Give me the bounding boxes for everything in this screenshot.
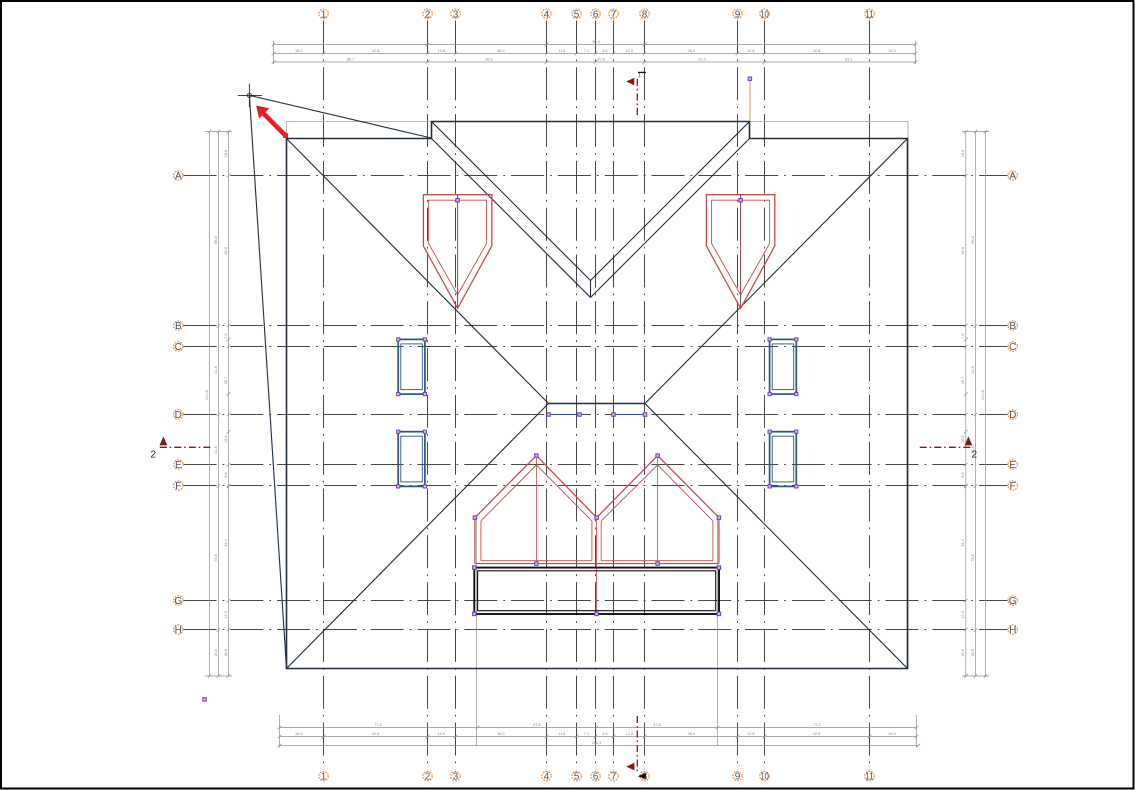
svg-text:3: 3 xyxy=(453,9,459,20)
svg-text:F: F xyxy=(175,481,181,492)
svg-text:8: 8 xyxy=(642,9,648,20)
svg-text:D: D xyxy=(1009,410,1016,421)
svg-text:7.6: 7.6 xyxy=(961,334,965,339)
svg-text:82.8: 82.8 xyxy=(224,247,228,254)
svg-text:G: G xyxy=(174,596,182,607)
svg-text:7: 7 xyxy=(611,9,617,20)
svg-text:47.5: 47.5 xyxy=(653,723,660,727)
svg-text:12.8: 12.8 xyxy=(747,732,754,736)
svg-text:12.3: 12.3 xyxy=(224,611,228,618)
svg-text:3: 3 xyxy=(453,772,459,783)
svg-text:11.8: 11.8 xyxy=(558,49,565,53)
svg-text:A: A xyxy=(175,171,182,182)
svg-text:42.8: 42.8 xyxy=(813,49,820,53)
svg-text:2: 2 xyxy=(972,450,978,461)
svg-text:76.8: 76.8 xyxy=(971,554,975,561)
svg-text:D: D xyxy=(175,410,182,421)
svg-text:28.7: 28.7 xyxy=(224,377,228,384)
svg-text:E: E xyxy=(1009,460,1016,471)
svg-text:10.8: 10.8 xyxy=(438,732,445,736)
svg-text:12.8: 12.8 xyxy=(747,49,754,53)
svg-text:18.8: 18.8 xyxy=(214,649,218,656)
svg-text:18.8: 18.8 xyxy=(961,649,965,656)
svg-text:18.8: 18.8 xyxy=(224,649,228,656)
svg-text:214.8: 214.8 xyxy=(981,390,985,400)
svg-text:76.8: 76.8 xyxy=(214,554,218,561)
svg-text:47.5: 47.5 xyxy=(533,723,540,727)
svg-text:36.0: 36.0 xyxy=(688,49,695,53)
svg-text:11: 11 xyxy=(865,9,874,20)
svg-text:10.8: 10.8 xyxy=(597,57,604,61)
svg-text:H: H xyxy=(175,625,182,636)
svg-text:6: 6 xyxy=(593,9,599,20)
svg-text:11.8: 11.8 xyxy=(558,732,565,736)
svg-text:10: 10 xyxy=(760,772,769,783)
svg-text:18.0: 18.0 xyxy=(295,49,302,53)
svg-text:4: 4 xyxy=(544,772,550,783)
svg-text:44.4: 44.4 xyxy=(961,539,965,546)
svg-text:77.0: 77.0 xyxy=(813,723,820,727)
svg-text:86.7: 86.7 xyxy=(347,57,354,61)
svg-text:21.8: 21.8 xyxy=(214,446,218,453)
svg-text:16.6: 16.6 xyxy=(224,436,228,443)
svg-text:12.0: 12.0 xyxy=(626,49,633,53)
svg-text:10.8: 10.8 xyxy=(438,49,445,53)
svg-text:5: 5 xyxy=(574,772,580,783)
svg-text:18.0: 18.0 xyxy=(295,732,302,736)
svg-text:50.3: 50.3 xyxy=(592,40,599,44)
svg-text:11: 11 xyxy=(865,772,874,783)
svg-text:42.8: 42.8 xyxy=(372,49,379,53)
svg-text:9: 9 xyxy=(735,772,741,783)
svg-text:12.0: 12.0 xyxy=(626,732,633,736)
svg-text:16.6: 16.6 xyxy=(961,436,965,443)
svg-text:8.8: 8.8 xyxy=(224,472,228,477)
svg-text:44.4: 44.4 xyxy=(224,539,228,546)
svg-text:36.0: 36.0 xyxy=(497,732,504,736)
svg-text:2: 2 xyxy=(151,450,157,461)
svg-text:8.8: 8.8 xyxy=(961,472,965,477)
svg-text:10: 10 xyxy=(760,9,769,20)
svg-text:248.3: 248.3 xyxy=(592,741,602,745)
svg-text:214.8: 214.8 xyxy=(205,390,209,400)
svg-text:36.0: 36.0 xyxy=(688,732,695,736)
svg-text:18.0: 18.0 xyxy=(888,49,895,53)
svg-text:12.3: 12.3 xyxy=(961,611,965,618)
svg-text:B: B xyxy=(1009,321,1016,332)
svg-text:1: 1 xyxy=(321,772,327,783)
svg-text:18.8: 18.8 xyxy=(224,150,228,157)
svg-text:42.8: 42.8 xyxy=(372,732,379,736)
svg-text:7.1: 7.1 xyxy=(584,732,589,736)
svg-text:4.8: 4.8 xyxy=(602,49,607,53)
svg-text:98.8: 98.8 xyxy=(214,236,218,243)
svg-text:A: A xyxy=(1009,171,1016,182)
svg-text:18.8: 18.8 xyxy=(971,649,975,656)
svg-text:1: 1 xyxy=(321,9,327,20)
svg-text:21.8: 21.8 xyxy=(971,366,975,373)
svg-text:18.8: 18.8 xyxy=(961,150,965,157)
svg-text:28.7: 28.7 xyxy=(961,377,965,384)
svg-text:83.1: 83.1 xyxy=(845,57,852,61)
svg-text:B: B xyxy=(175,321,182,332)
svg-text:2: 2 xyxy=(425,9,431,20)
svg-text:C: C xyxy=(1009,342,1016,353)
svg-text:21.0: 21.0 xyxy=(698,57,705,61)
svg-text:6: 6 xyxy=(593,772,599,783)
svg-text:7.6: 7.6 xyxy=(224,334,228,339)
svg-text:G: G xyxy=(1009,596,1017,607)
svg-text:5: 5 xyxy=(574,9,580,20)
svg-text:36.0: 36.0 xyxy=(497,49,504,53)
svg-text:H: H xyxy=(1009,625,1016,636)
svg-text:98.8: 98.8 xyxy=(971,236,975,243)
svg-text:4.8: 4.8 xyxy=(602,732,607,736)
svg-text:2: 2 xyxy=(425,772,431,783)
svg-text:9: 9 xyxy=(735,9,741,20)
svg-text:E: E xyxy=(175,460,182,471)
svg-text:36.0: 36.0 xyxy=(485,57,492,61)
svg-text:1: 1 xyxy=(638,73,641,79)
svg-text:18.0: 18.0 xyxy=(888,732,895,736)
svg-text:7: 7 xyxy=(611,772,617,783)
svg-text:77.0: 77.0 xyxy=(374,723,381,727)
svg-text:7.1: 7.1 xyxy=(584,49,589,53)
svg-text:C: C xyxy=(175,342,182,353)
svg-text:21.8: 21.8 xyxy=(214,366,218,373)
svg-text:4: 4 xyxy=(544,9,550,20)
svg-text:82.8: 82.8 xyxy=(961,247,965,254)
svg-text:42.8: 42.8 xyxy=(813,732,820,736)
svg-text:F: F xyxy=(1010,481,1016,492)
